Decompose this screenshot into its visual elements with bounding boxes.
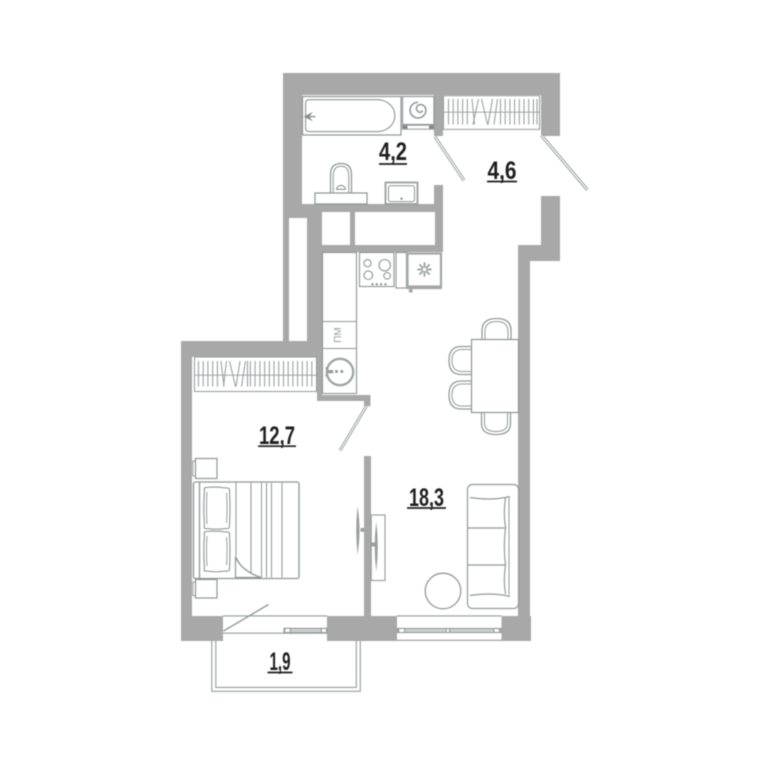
svg-text:ПМ: ПМ — [333, 327, 344, 343]
svg-text:4,2: 4,2 — [379, 138, 407, 166]
